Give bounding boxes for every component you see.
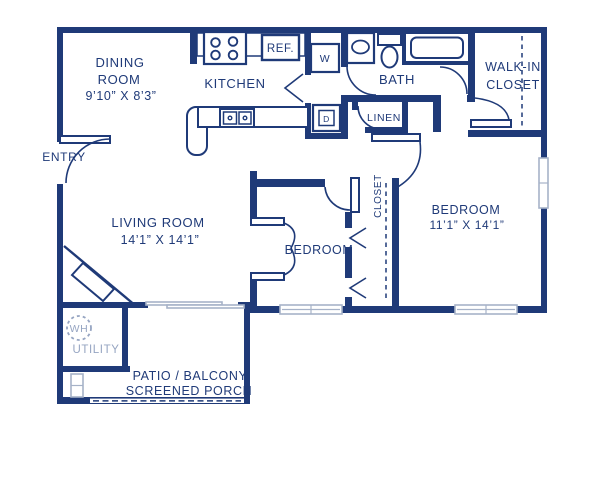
large-bedroom-dims: 11’1” X 14’1” — [430, 218, 505, 232]
window — [280, 305, 342, 314]
floor-plan-page: REF. W D — [0, 0, 600, 490]
small-bedroom-label: BEDROOM — [285, 243, 354, 257]
large-bedroom-label: BEDROOM — [432, 203, 501, 217]
stove-icon — [204, 32, 246, 64]
small-bedroom-door — [325, 178, 359, 212]
water-heater-icon: WH — [67, 316, 91, 340]
kitchen-door — [285, 74, 303, 102]
living-room-label: LIVING ROOM — [111, 215, 204, 230]
bath-fixtures — [347, 32, 470, 68]
window — [539, 158, 548, 208]
sliding-door — [146, 302, 244, 308]
bath-label: BATH — [379, 72, 415, 87]
bifold-door-icon — [350, 278, 366, 298]
vanity-sink-icon — [347, 33, 374, 63]
refrigerator-box: REF. — [262, 35, 299, 60]
dining-room-label-2: ROOM — [98, 72, 141, 87]
entry-label: ENTRY — [42, 150, 85, 164]
kitchen-fixtures: REF. — [187, 32, 308, 155]
bath-door-arc — [347, 66, 376, 95]
walkin-door — [471, 98, 511, 127]
walkin-closet-label-2: CLOSET — [486, 78, 540, 92]
washer-box: W — [311, 44, 339, 72]
fireplace-icon — [64, 246, 136, 306]
dining-room-label: DINING — [95, 55, 144, 70]
windows — [71, 158, 548, 397]
patio-label-2: SCREENED PORCH — [126, 384, 252, 398]
living-room-dims: 14’1” X 14’1” — [121, 233, 200, 247]
dining-room-dims: 9’10” X 8’3” — [85, 89, 156, 103]
utility-label: UTILITY — [72, 344, 119, 356]
toilet-icon — [378, 34, 401, 68]
linen-label: LINEN — [367, 112, 401, 124]
refrigerator-label: REF. — [267, 43, 294, 55]
washer-label: W — [320, 53, 331, 65]
screen-wall — [90, 399, 244, 403]
bath-door-arc-2 — [440, 67, 467, 94]
patio-label: PATIO / BALCONY — [133, 369, 248, 383]
dryer-label: D — [323, 114, 330, 124]
closet-label: CLOSET — [373, 174, 384, 218]
sink-icon — [220, 109, 254, 127]
window — [455, 305, 517, 314]
floor-plan-svg: REF. W D — [0, 0, 600, 490]
walkin-closet-label: WALK-IN — [485, 60, 541, 74]
window — [71, 374, 83, 397]
dryer-box: D — [313, 105, 340, 131]
bathtub-icon — [404, 32, 470, 63]
kitchen-label: KITCHEN — [204, 76, 265, 91]
water-heater-label: WH — [70, 323, 89, 335]
laundry: W D — [311, 44, 340, 131]
